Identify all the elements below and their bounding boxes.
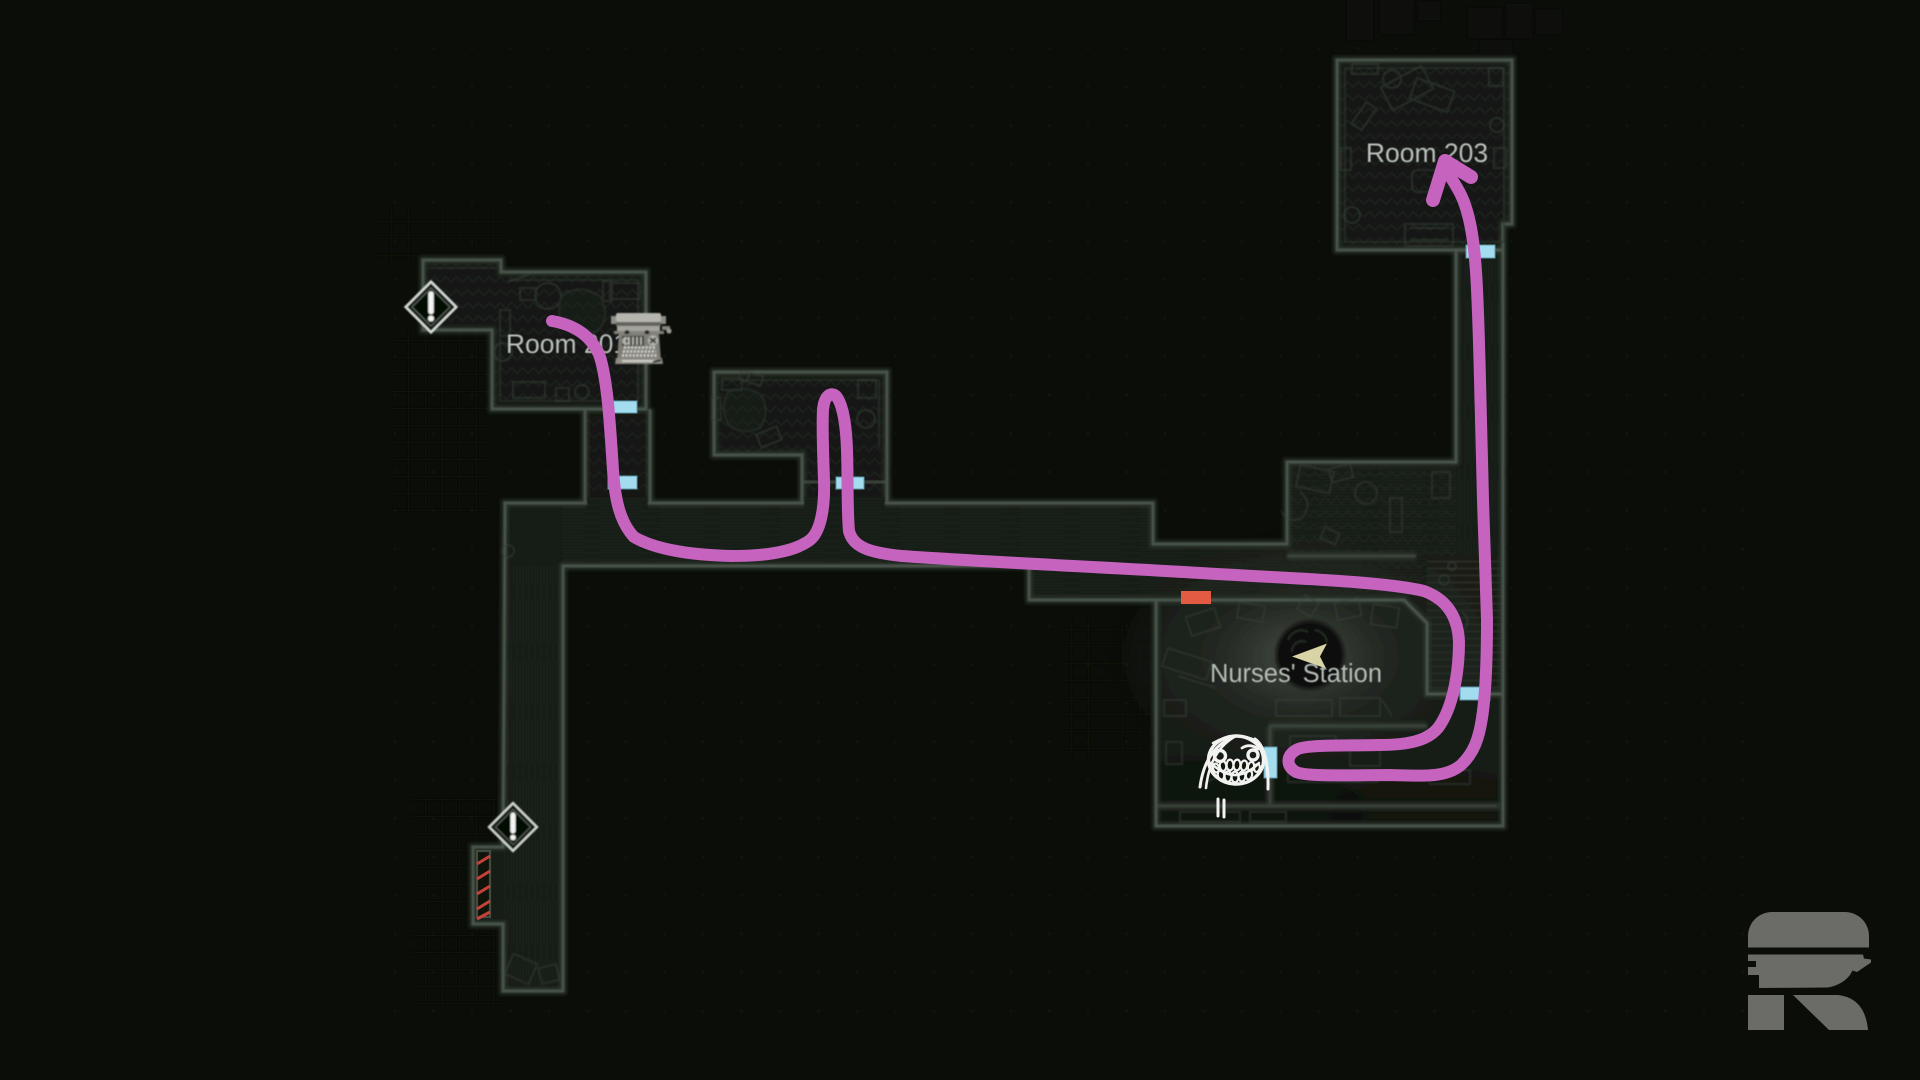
svg-text:Room 203: Room 203 <box>1366 138 1488 168</box>
svg-text:Room 201: Room 201 <box>506 329 628 359</box>
svg-text:Nurses' Station: Nurses' Station <box>1210 660 1382 688</box>
